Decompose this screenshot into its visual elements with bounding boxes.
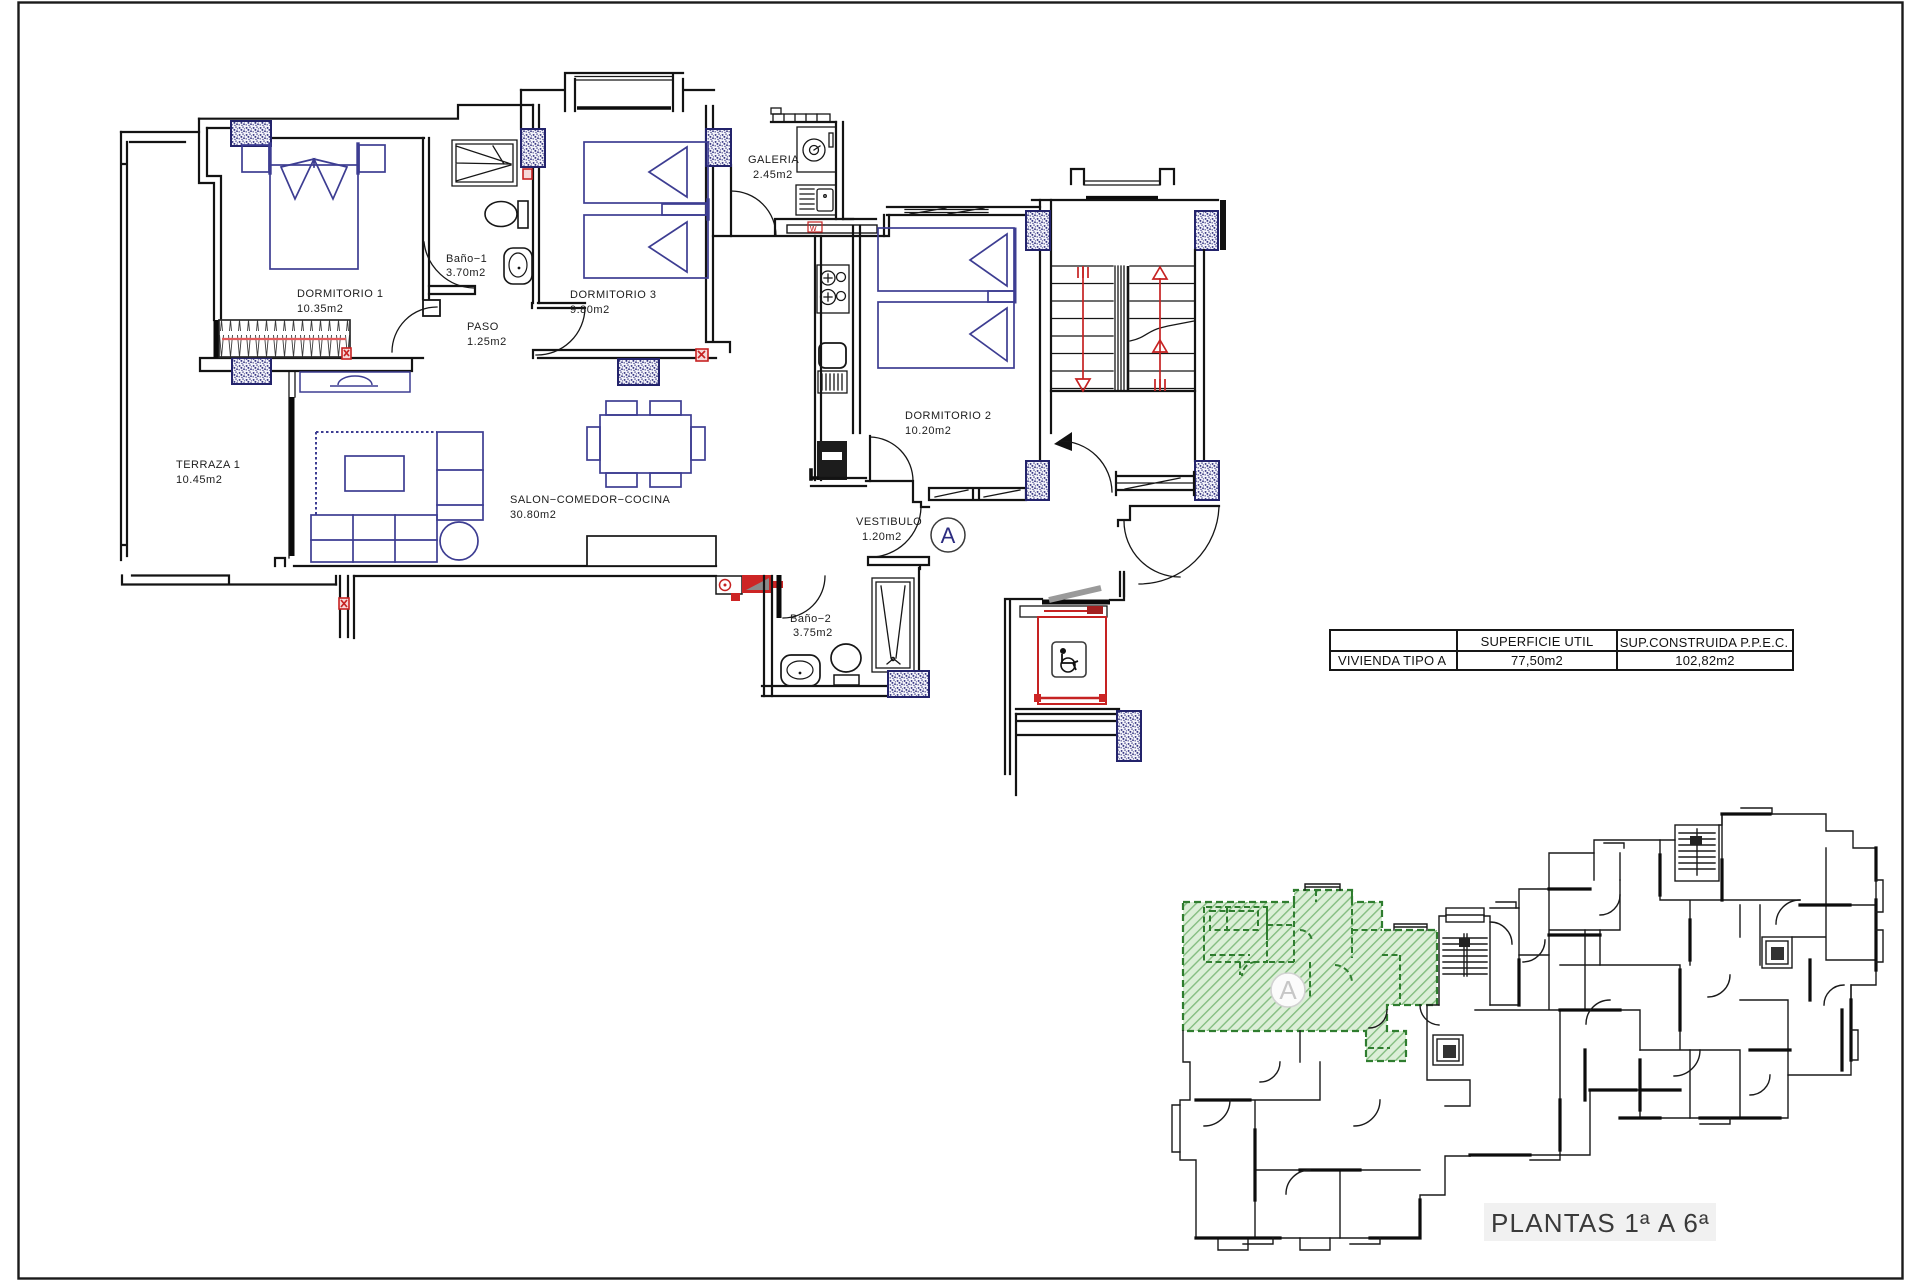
svg-text:Baño−2: Baño−2 <box>790 613 831 625</box>
svg-text:TERRAZA 1: TERRAZA 1 <box>176 459 240 471</box>
svg-text:w: w <box>809 223 817 233</box>
svg-text:77,50m2: 77,50m2 <box>1511 653 1563 668</box>
svg-text:PASO: PASO <box>467 321 499 333</box>
svg-text:3.75m2: 3.75m2 <box>793 627 833 639</box>
svg-text:SUP.CONSTRUIDA P.P.E.C.: SUP.CONSTRUIDA P.P.E.C. <box>1620 635 1789 650</box>
svg-text:PLANTAS 1ª A 6ª: PLANTAS 1ª A 6ª <box>1491 1208 1710 1238</box>
svg-text:9.80m2: 9.80m2 <box>570 304 610 316</box>
svg-text:10.20m2: 10.20m2 <box>905 425 951 437</box>
svg-text:10.45m2: 10.45m2 <box>176 474 222 486</box>
svg-text:A: A <box>941 523 956 548</box>
svg-text:GALERIA: GALERIA <box>748 154 799 166</box>
svg-text:1.25m2: 1.25m2 <box>467 336 507 348</box>
svg-text:10.35m2: 10.35m2 <box>297 303 343 315</box>
svg-text:DORMITORIO 2: DORMITORIO 2 <box>905 410 991 422</box>
svg-text:30.80m2: 30.80m2 <box>510 509 556 521</box>
svg-text:SALON−COMEDOR−COCINA: SALON−COMEDOR−COCINA <box>510 494 671 506</box>
svg-text:Baño−1: Baño−1 <box>446 253 487 265</box>
svg-text:1.20m2: 1.20m2 <box>862 531 902 543</box>
svg-text:VESTIBULO: VESTIBULO <box>856 516 922 528</box>
svg-text:DORMITORIO 1: DORMITORIO 1 <box>297 288 383 300</box>
svg-text:VIVIENDA TIPO A: VIVIENDA TIPO A <box>1338 653 1446 668</box>
svg-text:3.70m2: 3.70m2 <box>446 267 486 279</box>
svg-text:A: A <box>1279 975 1297 1005</box>
svg-text:102,82m2: 102,82m2 <box>1675 653 1734 668</box>
svg-text:DORMITORIO 3: DORMITORIO 3 <box>570 289 656 301</box>
svg-text:SUPERFICIE UTIL: SUPERFICIE UTIL <box>1481 634 1594 649</box>
svg-text:2.45m2: 2.45m2 <box>753 169 793 181</box>
